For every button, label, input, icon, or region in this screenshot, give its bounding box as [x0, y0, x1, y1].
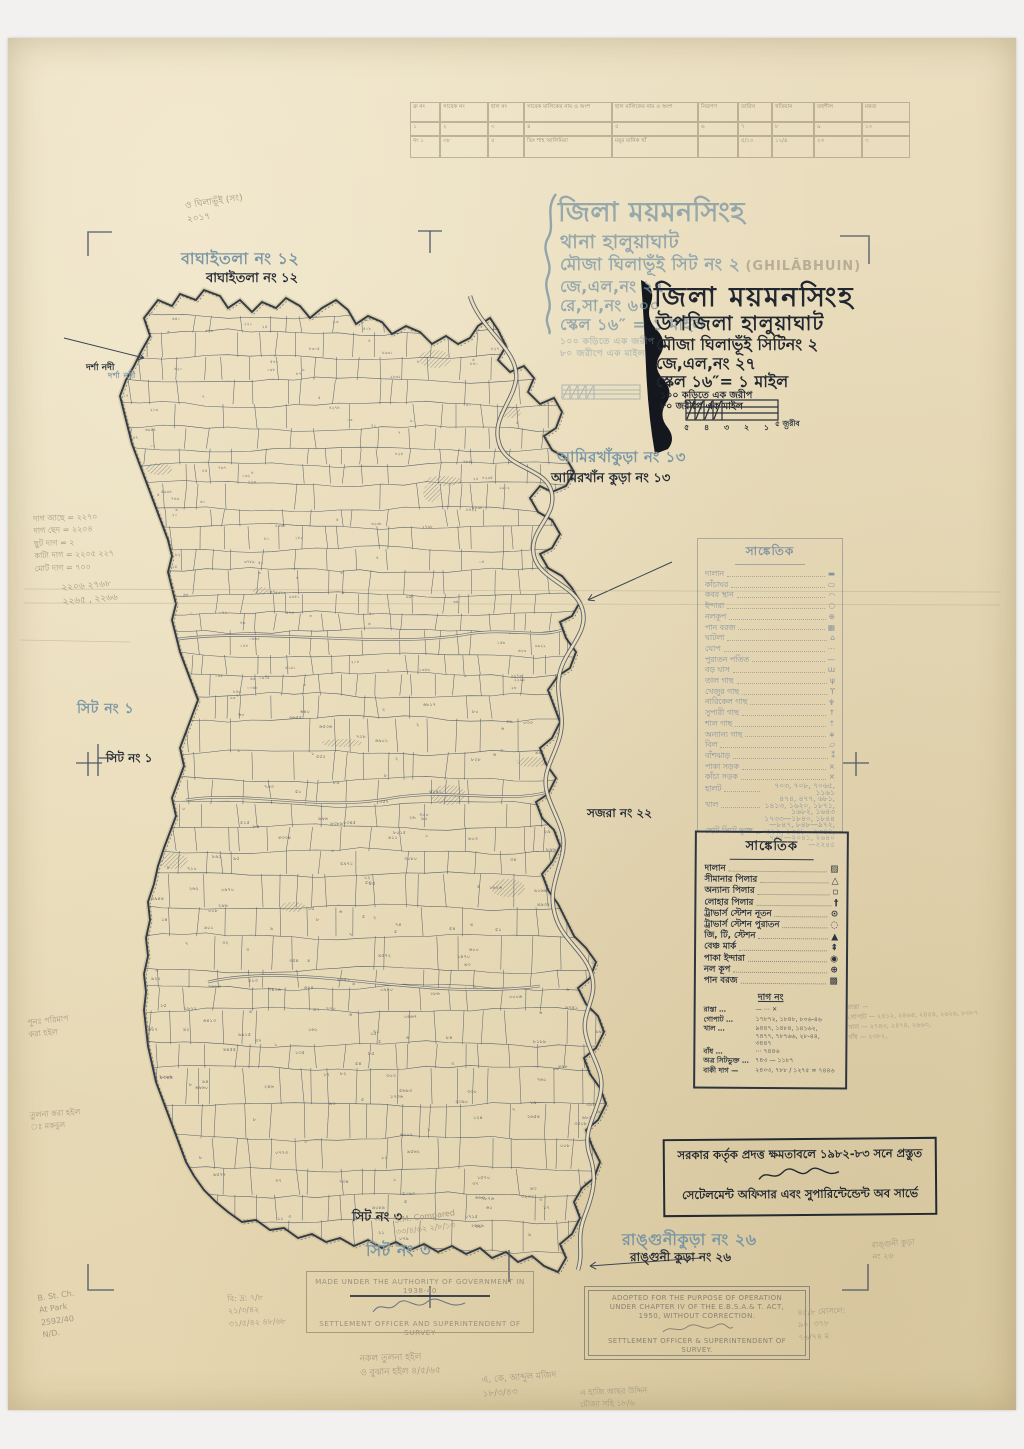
legend-item-leader — [721, 801, 760, 808]
stamp-line: UNDER CHAPTER IV OF THE E.B.S.A.& T. ACT… — [589, 1303, 805, 1312]
table-cell: তহশীল — [814, 102, 862, 122]
legend-item: অন্যান্য গাছ ∗ — [705, 730, 835, 741]
legend-item-label: ট্রাভার্স স্টেশন পুরাতন — [704, 920, 779, 932]
table-cell: হাল নং — [488, 102, 524, 122]
table-cell: মন্তব্য — [862, 102, 910, 122]
legend-item-leader — [727, 602, 825, 609]
table-cell: ভিং শাহ আলিমিয়া — [524, 136, 612, 158]
pencil-dag-right: রাস্তা —গোপাট — ২৪১২, ২৪৬৪, ২৪৫৪, ২৬২৬, … — [847, 998, 979, 1043]
legend-item-symbol: ▨ — [830, 867, 839, 874]
legend-item-label: দালান — [705, 864, 726, 875]
plot-number-row: খাল … ৯৪৪৭, ১৪৮৪, ১৪১৬২, ৭৪৭৭, ৭৮৭৬৬, ২৮… — [703, 1025, 837, 1048]
legend-item-symbol: ⊕ — [829, 614, 835, 621]
legend-item-leader — [733, 752, 828, 759]
legend-item: দালান ▬ — [705, 569, 835, 580]
legend-item: খেজুর গাছ ϒ — [705, 687, 835, 698]
legend-item-leader — [739, 943, 827, 951]
legend-item-symbol: — — [828, 657, 836, 664]
label-baghaitala-hand: বাঘাইতলা নং ১২ — [206, 269, 298, 290]
signature — [365, 1296, 475, 1318]
legend-item-leader — [720, 741, 826, 748]
legend-item: পাকা সড়ক × — [705, 762, 835, 773]
legend-item-symbol: × — [829, 774, 835, 781]
legend-item: নল কূপ ⊕ — [704, 964, 838, 976]
table-cell: ৩ — [862, 136, 910, 158]
legend-item-symbol: ▱ — [829, 742, 835, 749]
bengali-settlement-stamp: সরকার কর্তৃক প্রদত্ত ক্ষমতাবলে ১৯৮২-৮৩ স… — [663, 1137, 938, 1217]
legend-item-leader — [737, 591, 826, 598]
legend-item-leader — [752, 655, 824, 662]
legend-item-label: ঘোপ — [705, 644, 721, 655]
legend-item-label: শাল গাছ — [705, 719, 732, 730]
legend-item-leader — [738, 623, 825, 630]
mouza-title-latin: (GHILĀBHUIN) — [745, 259, 861, 274]
legend-item-leader — [735, 720, 825, 727]
label-sajra-hand: সজরা নং ২২ — [587, 805, 652, 825]
pencil-corner-note: B. St. Ch.At Park2592/40N/D. — [37, 1288, 81, 1342]
legend-item-label: ঘাটলা — [705, 633, 724, 644]
table-cell: ৩ — [488, 122, 524, 136]
signature — [755, 1166, 845, 1185]
legend-item-label: দালান — [705, 569, 724, 580]
legend-print-items: দালান ▬ কাঁচাঘর ▭ কবর স্থান ◠ ইন্দারা ○ — [705, 569, 835, 848]
plot-number-row-values: ⋯ ৭৪৪৬ — [755, 1048, 837, 1058]
legend-item-symbol: ▫ — [832, 889, 838, 896]
plot-number-row-values: ২৪০৩, ৭৮৮ / ১২৭৫ = ৭৪৪৬ — [755, 1067, 837, 1077]
table-cell: ৫ — [488, 136, 524, 158]
stamp-line: SURVEY. — [589, 1346, 805, 1355]
table-cell: ৬ — [698, 122, 738, 136]
stamp-line: সরকার কর্তৃক প্রদত্ত ক্ষমতাবলে ১৯৮২-৮৩ স… — [665, 1145, 935, 1166]
plot-number-row-label: রাস্তা … — [704, 1006, 756, 1016]
legend-item-label: পাকা সড়ক — [705, 762, 739, 773]
signature — [657, 1322, 737, 1336]
legend-item-label: নারিকেল গাছ — [705, 697, 747, 708]
legend-item-symbol: × — [829, 764, 835, 771]
legend-item: নলকূপ ⊕ — [705, 612, 835, 623]
legend-item-label: ট্রাভার্স স্টেশন নূতন — [704, 908, 771, 920]
legend-item-leader — [740, 977, 826, 985]
legend-item-symbol: ▩ — [829, 979, 838, 986]
stamp-line: ADOPTED FOR THE PURPOSE OF OPERATION — [589, 1294, 805, 1303]
legend-item: বেঞ্চ মার্ক ⇞ — [704, 942, 838, 954]
legend-item-symbol: † — [834, 900, 839, 907]
legend-item-leader — [724, 645, 825, 652]
table-cell: ৯ — [814, 122, 862, 136]
legend-item-symbol: ψ — [830, 678, 835, 685]
pencil-bottom-center: নকল তুলনা হইলও বুঝান হইল ৪/৫/৬৫ — [360, 1351, 441, 1382]
legend-item-label: খাল — [705, 800, 718, 811]
legend-item-label: নলকূপ — [705, 612, 726, 623]
legend-item-symbol: ϒ — [830, 689, 835, 696]
label-sheet1-print: সিট নং ১ — [77, 697, 134, 721]
legend-item: পাকা ইন্দারা ◉ — [704, 953, 838, 965]
plot-number-rows: রাস্তা … — ⋯ ✕ গোপাট … ১৭৮৭২, ১৮৪৮, ৮০৬-… — [703, 1006, 837, 1077]
label-sheet3-print: সিট নং ৩ — [366, 1238, 431, 1265]
plot-number-row-values: ৯৪৪৭, ১৪৮৪, ১৪১৬২, ৭৪৭৭, ৭৮৭৬৬, ২৮-৪৪, ৩… — [755, 1025, 837, 1048]
mouza-title-print: মৌজা ঘিলাভূঁই সিট নং ২ — [560, 255, 740, 275]
pencil-left-lower2: তুলনা করা হইলঃ মকবুল — [29, 1106, 81, 1134]
legend-item-label: পাকা ইন্দারা — [704, 953, 745, 964]
legend-item-label: সুপারী গাছ — [705, 708, 739, 719]
legend-item-leader — [775, 910, 828, 917]
legend-print: সাঙ্কেতিক দালান ▬ কাঁচাঘর ▭ কবর স্থান ◠ … — [697, 538, 843, 832]
legend-item-label: পান বরজ — [704, 976, 738, 987]
plot-number-section-title: দাগ নং — [704, 990, 838, 1006]
legend-item: লোহার পিলার † — [704, 897, 838, 909]
legend-item-leader — [724, 785, 760, 792]
legend-item-leader — [742, 763, 826, 770]
legend-item-label: অন্যান্য পিলার — [704, 886, 754, 898]
stamp-line: 1950, WITHOUT CORRECTION. — [589, 1312, 805, 1321]
plot-number-row-label: অত্র সিটভুক্ত … — [703, 1057, 755, 1067]
table-cell: ৩৮ — [440, 136, 488, 158]
label-rangunikura-hand: রাঙ্গুনী কুড়া নং ২৬ — [630, 1249, 731, 1269]
label-amirkhakura-print: আমিরখাঁকুড়া নং ১৩ — [557, 446, 686, 471]
scale-bar-unit-label: ৫ জরীব — [775, 419, 800, 431]
pencil-dates-left: বি: দ্র: ৭/৮২১/৩/৪২৩১/৫/৪২ ৪৮/৬৮ — [227, 1291, 286, 1331]
legend-item: ঘাটলা ⌂ — [705, 633, 835, 644]
pencil-left-lower: পুনঃ পরিমাপকরা হইল — [27, 1013, 71, 1042]
label-sheet1-hand: সিট নং ১ — [106, 750, 152, 770]
table-cell: সাবেক মালিকের নাম ও অংশ — [524, 102, 612, 122]
legend-item-leader — [758, 932, 828, 939]
plot-number-row-values: — ⋯ ✕ — [756, 1006, 838, 1016]
legend-item-leader — [783, 921, 828, 928]
stamp-line: MADE UNDER THE AUTHORITY OF GOVERNMENT I… — [307, 1277, 533, 1295]
legend-item-symbol: △ — [832, 878, 839, 885]
legend-item-leader — [733, 966, 827, 974]
legend-item-label: নল কূপ — [704, 964, 730, 975]
pencil-tally: দাগ আছে = ২২৭০দাগ ছেদ = ২২০৪ছুট দাগ = ২ক… — [33, 511, 115, 576]
legend-item-symbol: ▲ — [831, 934, 838, 941]
legend-item: বড় ঘাস ɯ — [705, 665, 835, 676]
table-cell: ৫/১০ — [738, 136, 772, 158]
legend-item-leader — [727, 570, 825, 577]
legend-item-symbol: ৪৭৪, ৪৭৭, ৬৮১, ১৪১৩, ১৬২০, ১৮৭১, ১৬৮২, ১… — [763, 796, 835, 816]
adopted-for-operation-stamp: ADOPTED FOR THE PURPOSE OF OPERATION UND… — [584, 1286, 810, 1360]
table-cell: ১০ — [862, 122, 910, 136]
legend-item-symbol: ↑ — [829, 710, 835, 717]
legend-item-label: কাঁচাঘর — [705, 580, 728, 591]
legend-item-label: বেঞ্চ মার্ক — [704, 942, 736, 953]
table-cell: ৫ — [612, 122, 698, 136]
legend-item: কাঁচাঘর ▭ — [705, 580, 835, 591]
legend-item-label: বাঁশঝাড় — [705, 751, 730, 762]
legend-item-leader — [727, 634, 827, 641]
legend-item: তাল গাছ ψ — [705, 676, 835, 687]
legend-item-symbol: ♆ — [828, 700, 835, 707]
legend-item-leader — [731, 581, 825, 588]
legend-item-symbol: ◌ — [830, 923, 838, 930]
pencil-bottom-mid: এ, কে, আব্দুল মজিদ১৮/৩/৪৩ — [481, 1369, 558, 1402]
legend-item: বাঁশঝাড় ⁑ — [705, 751, 835, 762]
legend-item-label: সীমানার পিলার — [705, 875, 758, 887]
correction-table: ক্র নংসাবেক নংহাল নংসাবেক মালিকের নাম ও … — [410, 102, 910, 158]
table-cell: সাবেক নং — [440, 102, 488, 122]
legend-item-symbol: ▭ — [828, 582, 835, 589]
label-darsha-river-print: দর্শা নদী — [108, 370, 136, 383]
legend-item-leader — [742, 688, 827, 695]
legend-item-symbol: ɯ — [828, 667, 835, 674]
legend-item-symbol: ⌂ — [830, 635, 835, 642]
legend-item-leader — [750, 698, 825, 705]
legend-item: ঘোপ ⋯ — [705, 644, 835, 655]
pencil-bottom-far: এ হাজি আছর উদ্দিনমৌজা সহি ১৮/৬ — [580, 1385, 648, 1412]
table-cell: ময়ূর মানিক খাঁ — [612, 136, 698, 158]
legend-item-symbol: ⊕ — [830, 968, 838, 975]
table-cell: ১ — [410, 122, 440, 136]
stamp-line: সেটেলমেন্ট অফিসার এবং সুপারিন্টেন্ডেন্ট … — [665, 1185, 935, 1206]
table-cell: ২ — [440, 122, 488, 136]
legend-item-label: বড় ঘাস — [705, 665, 730, 676]
legend-item-symbol: ○ — [828, 603, 835, 610]
legend-item-symbol: ◠ — [828, 593, 835, 600]
legend-item-label: খেজুর গাছ — [705, 687, 739, 698]
legend-item-symbol: ∗ — [829, 732, 835, 739]
legend-item-leader — [745, 730, 825, 737]
legend-item-leader — [760, 876, 828, 883]
made-under-authority-stamp: MADE UNDER THE AUTHORITY OF GOVERNMENT I… — [306, 1271, 534, 1333]
legend-item: পুরাতন পতিত — — [705, 655, 835, 666]
legend-item: ট্রাভার্স স্টেশন নূতন ⊙ — [704, 908, 838, 920]
legend-item-symbol: ⊙ — [831, 912, 839, 919]
legend-item: নারিকেল গাছ ♆ — [705, 697, 835, 708]
legend-item: পান বরজ ▩ — [704, 976, 838, 988]
legend-item-label: অন্যান্য গাছ — [705, 730, 742, 741]
table-cell: হাল মালিকের নাম ও অংশ — [612, 102, 698, 122]
legend-item-leader — [741, 773, 826, 780]
stamp-inner-border: ADOPTED FOR THE PURPOSE OF OPERATION UND… — [588, 1290, 806, 1356]
pencil-26-note: রাঙ্গুনী কুড়ানং ২৬ — [871, 1237, 916, 1265]
legend-item-symbol: ⇞ — [831, 945, 839, 952]
stamp-line: SETTLEMENT OFFICER AND SUPERINTENDENT OF… — [307, 1319, 533, 1337]
scale-note2-print: ৮০ জরীপে এক মাইল — [560, 346, 645, 361]
table-cell: ১২/৪ — [772, 136, 814, 158]
legend-item-leader — [729, 613, 825, 620]
legend-item-leader — [756, 899, 831, 907]
table-cell — [698, 136, 738, 158]
legend-item-symbol: ⇡ — [829, 721, 835, 728]
table-cell: ৪ — [524, 122, 612, 136]
table-cell: নং ১ — [410, 136, 440, 158]
legend-item-leader — [758, 887, 830, 895]
legend-item-label: ইন্দারা — [705, 601, 724, 612]
legend-item: খাল ৪৭৪, ৪৭৭, ৬৮১, ১৪১৩, ১৬২০, ১৮৭১, ১৬৮… — [705, 796, 835, 816]
legend-item-label: পুরাতন পতিত — [705, 655, 749, 666]
table-cell: তারিখ — [738, 102, 772, 122]
legend-item-label: জি, টি, স্টেশন — [704, 931, 755, 943]
legend-item-label: কাঁচা সড়ক — [705, 772, 738, 783]
legend-item-label: লোহার পিলার — [704, 897, 753, 909]
legend-hand: সাঙ্কেতিক দালান ▨ সীমানার পিলার △ অন্যান… — [693, 830, 849, 1089]
legend-item-label: কবর স্থান — [705, 590, 734, 601]
legend-print-title: সাঙ্কেতিক — [735, 543, 805, 565]
table-cell: নিরূপণ — [698, 102, 738, 122]
legend-item-leader — [737, 677, 828, 684]
table-cell: ২৩ — [814, 136, 862, 158]
table-cell: ক্র নং — [410, 102, 440, 122]
plot-number-row-label: খাল … — [703, 1025, 755, 1048]
legend-item-label: পান বরজ — [705, 623, 735, 634]
plot-number-row-label: বাকী দাগ — — [703, 1066, 755, 1076]
legend-item: শাল গাছ ⇡ — [705, 719, 835, 730]
legend-item-label: হালট — [705, 784, 721, 795]
legend-item-leader — [748, 955, 827, 963]
plot-number-row-label: গোপাট … — [704, 1015, 756, 1025]
legend-item-symbol: ⁑ — [831, 753, 835, 760]
legend-hand-title: সাঙ্কেতিক — [730, 837, 814, 861]
legend-item-symbol: ▬ — [828, 571, 835, 578]
legend-item: পান বরজ ▦ — [705, 623, 835, 634]
stamp-line: SETTLEMENT OFFICER & SUPERINTENDENT OF — [589, 1337, 805, 1346]
legend-item-leader — [742, 709, 826, 716]
legend-item-leader — [733, 666, 825, 673]
label-amirkhakura-hand: আমিরখাঁন কুড়া নং ১৩ — [551, 469, 670, 490]
legend-item-label: তাল গাছ — [705, 676, 734, 687]
legend-item: কবর স্থান ◠ — [705, 590, 835, 601]
legend-item-symbol: ◉ — [830, 956, 838, 963]
table-cell: খতিয়ান — [772, 102, 814, 122]
legend-item: ইন্দারা ○ — [705, 601, 835, 612]
legend-item-symbol: ▦ — [828, 625, 835, 632]
legend-item: অন্যান্য পিলার ▫ — [704, 886, 838, 898]
table-cell: ৭ — [738, 122, 772, 136]
legend-item-symbol: ⋯ — [828, 646, 836, 653]
pencil-tally-sum: ২২০৬ ২৭৬৮২২৬৫ , ২২৬৬ — [61, 578, 119, 611]
legend-hand-items: দালান ▨ সীমানার পিলার △ অন্যান্য পিলার ▫… — [704, 864, 839, 988]
plot-number-row-values: ৭৪৩ — ১১৮৭ — [755, 1057, 837, 1067]
table-cell: ৮ — [772, 122, 814, 136]
scale-bar-hand — [684, 398, 784, 424]
legend-item-leader — [729, 865, 827, 873]
legend-item: সুপারী গাছ ↑ — [705, 708, 835, 719]
plot-number-row-values: ১৭৮৭২, ১৮৪৮, ৮০৬-৪৬ — [756, 1016, 838, 1026]
legend-item-label: বিল — [705, 740, 717, 751]
legend-item: বিল ▱ — [705, 740, 835, 751]
scale-bar-print — [560, 382, 644, 408]
plot-number-row: বাকী দাগ — ২৪০৩, ৭৮৮ / ১২৭৫ = ৭৪৪৬ — [703, 1066, 837, 1076]
